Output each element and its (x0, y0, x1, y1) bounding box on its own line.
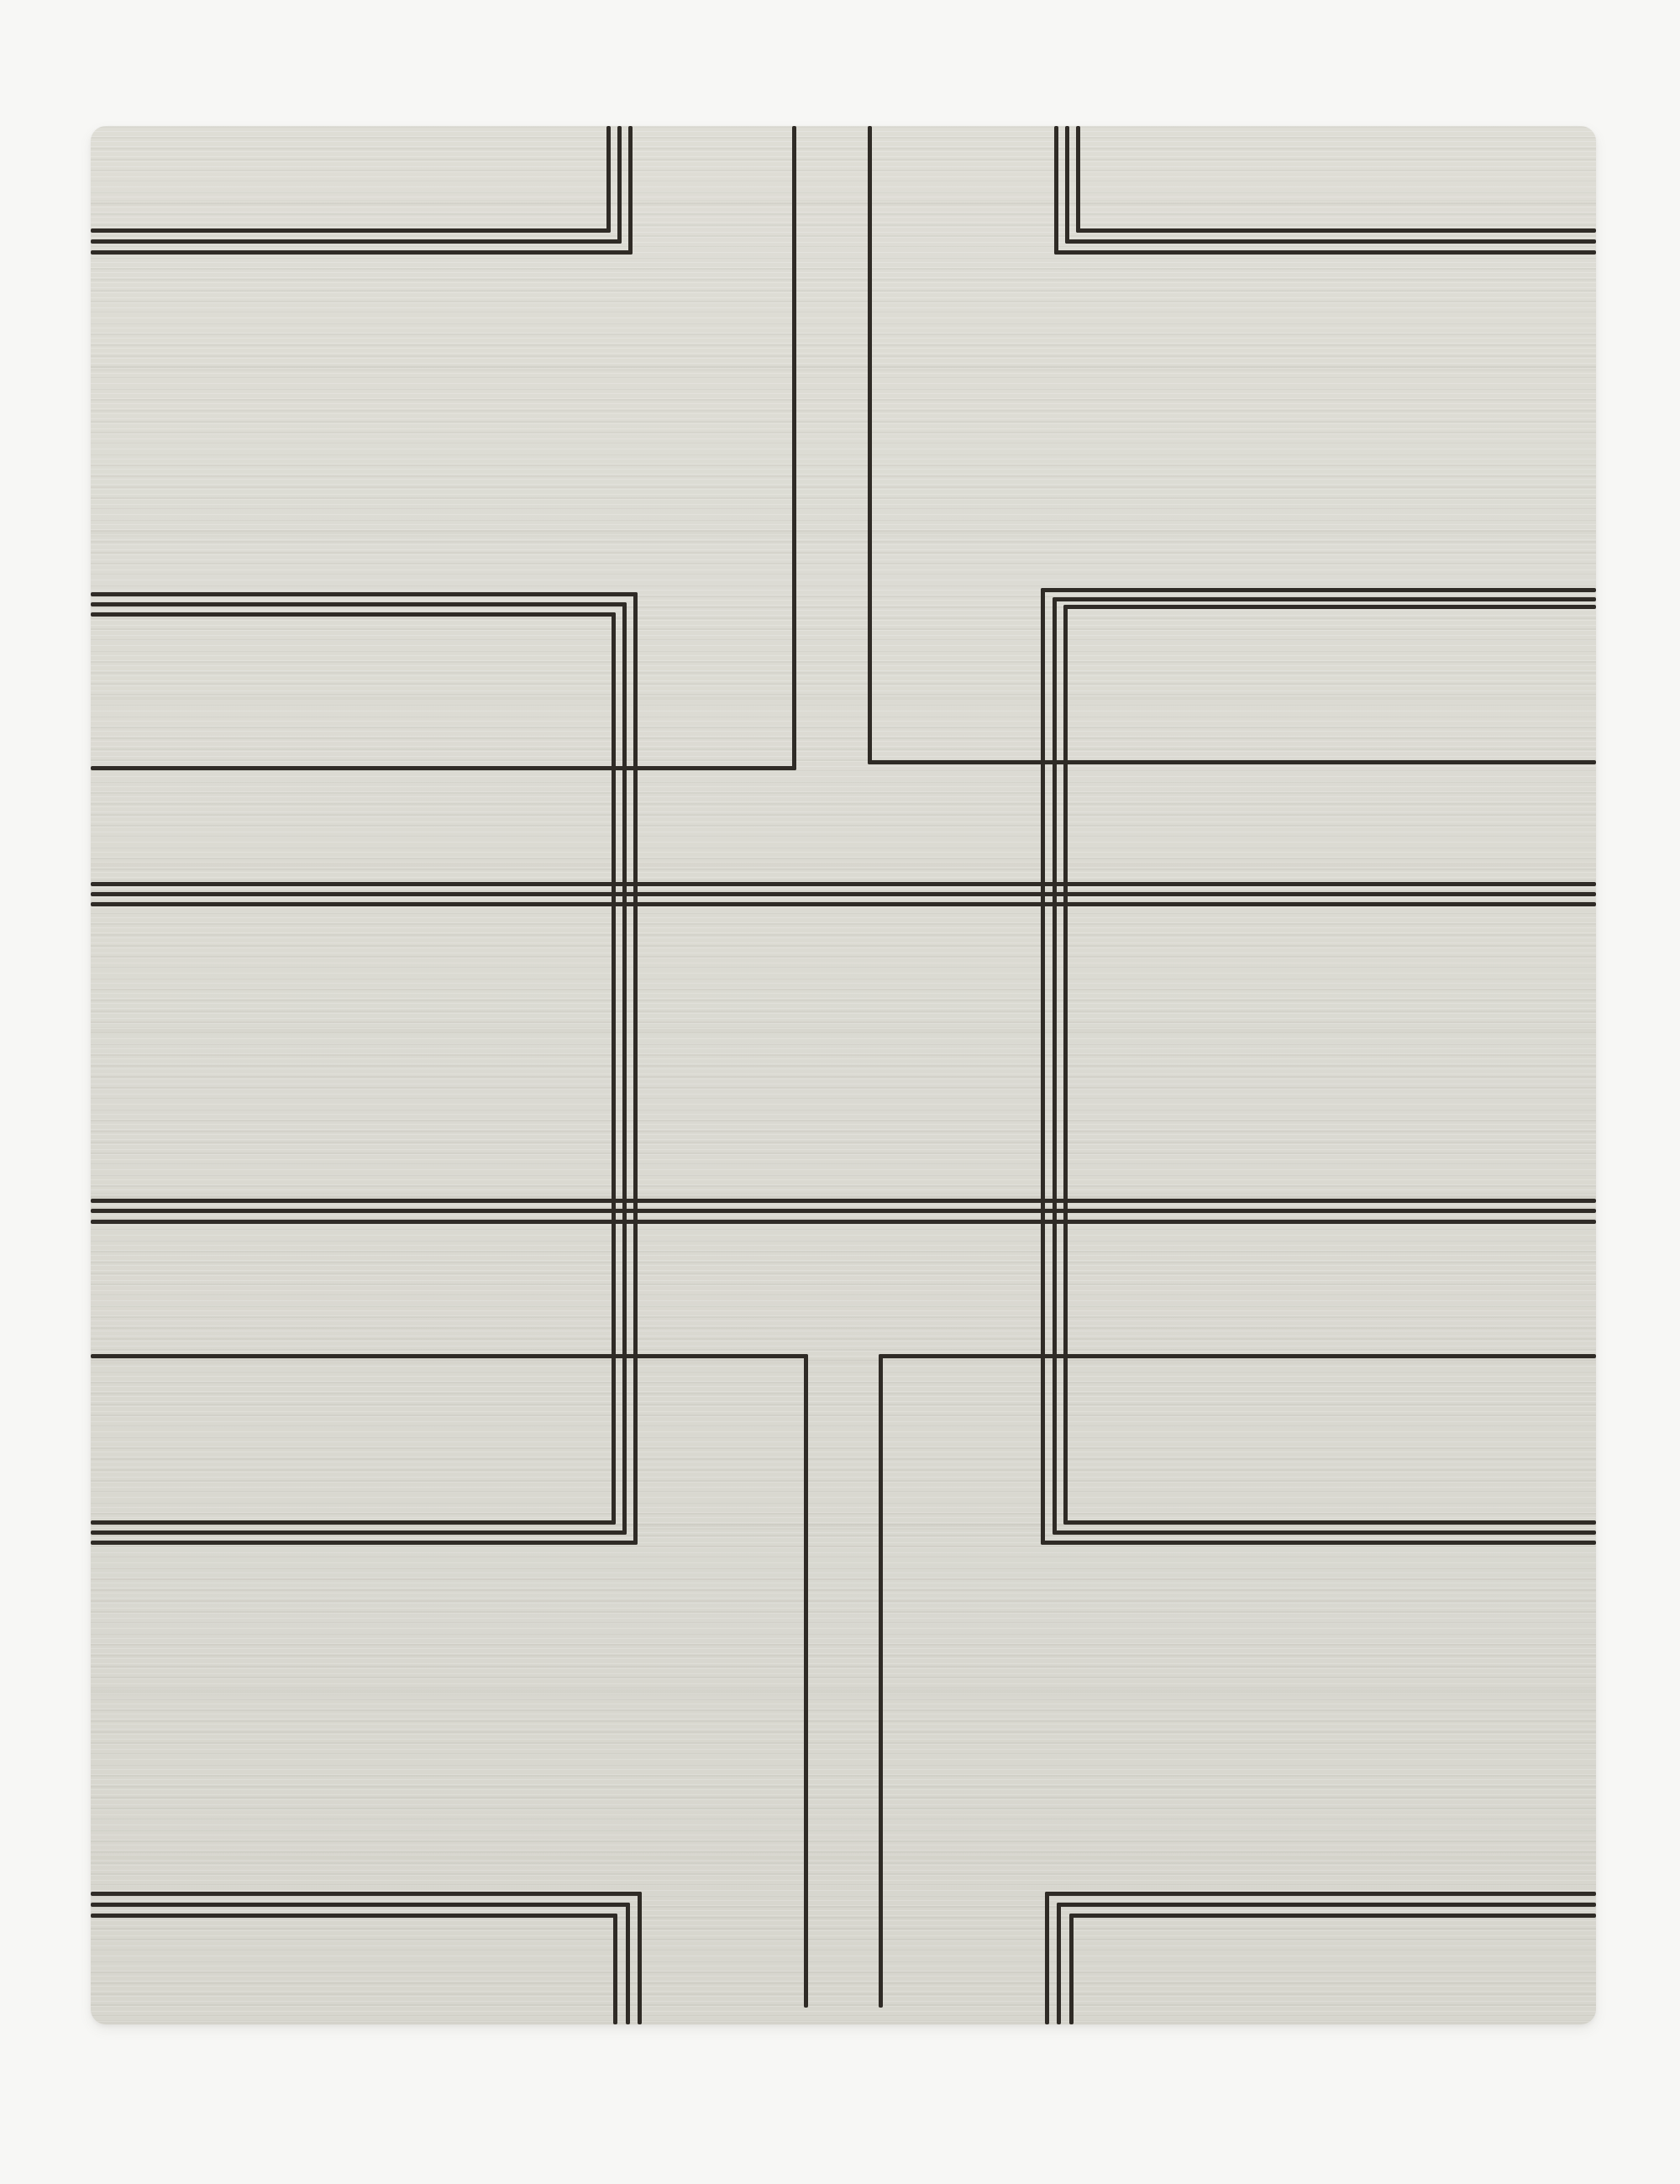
pattern-line-right-c-inner-top-h (1063, 605, 1596, 609)
pattern-line-bottom-center-right-h (879, 1354, 1596, 1358)
pattern-line-left-c-mid-bottom-h (91, 1530, 627, 1535)
pattern-line-right-c-inner-v (1063, 605, 1068, 1525)
pattern-line-left-c-inner-top-h (91, 612, 616, 617)
pattern-line-tr-bracket-h-inner (1076, 228, 1596, 233)
pattern-line-tl-bracket-v-mid (617, 126, 622, 244)
pattern-line-left-c-mid-top-h (91, 602, 627, 606)
pattern-line-bottom-center-left-h (91, 1354, 808, 1358)
pattern-line-tl-bracket-v-outer (628, 126, 633, 255)
pattern-line-top-center-left-v (792, 126, 796, 770)
pattern-line-left-c-mid-v (622, 602, 627, 1535)
pattern-line-bl-bracket-v-outer (638, 1892, 642, 2024)
pattern-line-br-bracket-h-mid (1057, 1903, 1596, 1907)
pattern-line-band-b-h1 (91, 1199, 1596, 1203)
pattern-line-br-bracket-h-outer (1045, 1892, 1596, 1896)
pattern-line-bottom-center-right-v (879, 1354, 883, 2008)
pattern-line-tl-bracket-h-inner (91, 228, 611, 233)
pattern-line-right-c-mid-top-h (1053, 597, 1596, 601)
pattern-line-right-c-inner-bottom-h (1063, 1520, 1596, 1525)
pattern-line-bl-bracket-h-inner (91, 1914, 617, 1918)
pattern-line-band-b-h3 (91, 1220, 1596, 1224)
pattern-line-bl-bracket-v-inner (613, 1914, 617, 2024)
pattern-line-right-c-outer-top-h (1041, 588, 1596, 592)
pattern-line-br-bracket-v-inner (1069, 1914, 1074, 2024)
pattern-line-left-c-inner-v (612, 612, 616, 1525)
pattern-line-tr-bracket-h-outer (1054, 250, 1596, 255)
photo-backdrop (0, 0, 1680, 2184)
pattern-line-bottom-center-left-v (804, 1354, 808, 2008)
pattern-line-bl-bracket-v-mid (626, 1903, 630, 2024)
pattern-line-bl-bracket-h-outer (91, 1892, 642, 1896)
pattern-line-tl-bracket-h-mid (91, 239, 622, 244)
pattern-line-bl-bracket-h-mid (91, 1903, 630, 1907)
pattern-line-tr-bracket-v-outer (1054, 126, 1058, 255)
pattern-line-right-c-outer-v (1041, 588, 1045, 1545)
pattern-line-band-a-h3 (91, 902, 1596, 906)
pattern-line-tr-bracket-v-inner (1076, 126, 1080, 233)
pattern-line-band-a-h2 (91, 892, 1596, 896)
pattern-line-right-c-mid-bottom-h (1053, 1530, 1596, 1535)
rug-image (91, 126, 1596, 2024)
pattern-line-right-c-mid-v (1053, 597, 1057, 1535)
pattern-line-top-center-right-v (868, 126, 872, 764)
pattern-line-band-b-h2 (91, 1209, 1596, 1213)
pattern-line-right-c-outer-bottom-h (1041, 1541, 1596, 1545)
pattern-line-tl-bracket-h-outer (91, 250, 633, 255)
pattern-line-band-a-h1 (91, 882, 1596, 886)
pattern-line-top-center-right-h (868, 760, 1596, 764)
pattern-line-tr-bracket-v-mid (1065, 126, 1069, 244)
pattern-line-br-bracket-v-mid (1057, 1903, 1061, 2024)
pattern-line-left-c-outer-v (633, 592, 638, 1545)
pattern-line-top-center-left-h (91, 766, 796, 770)
pattern-line-left-c-outer-top-h (91, 592, 638, 596)
pattern-line-tr-bracket-h-mid (1065, 239, 1596, 244)
pattern-line-tl-bracket-v-inner (606, 126, 611, 233)
pattern-line-br-bracket-v-outer (1045, 1892, 1049, 2024)
pattern-line-br-bracket-h-inner (1069, 1914, 1596, 1918)
pattern-line-left-c-outer-bottom-h (91, 1541, 638, 1545)
pattern-line-left-c-inner-bottom-h (91, 1520, 616, 1525)
